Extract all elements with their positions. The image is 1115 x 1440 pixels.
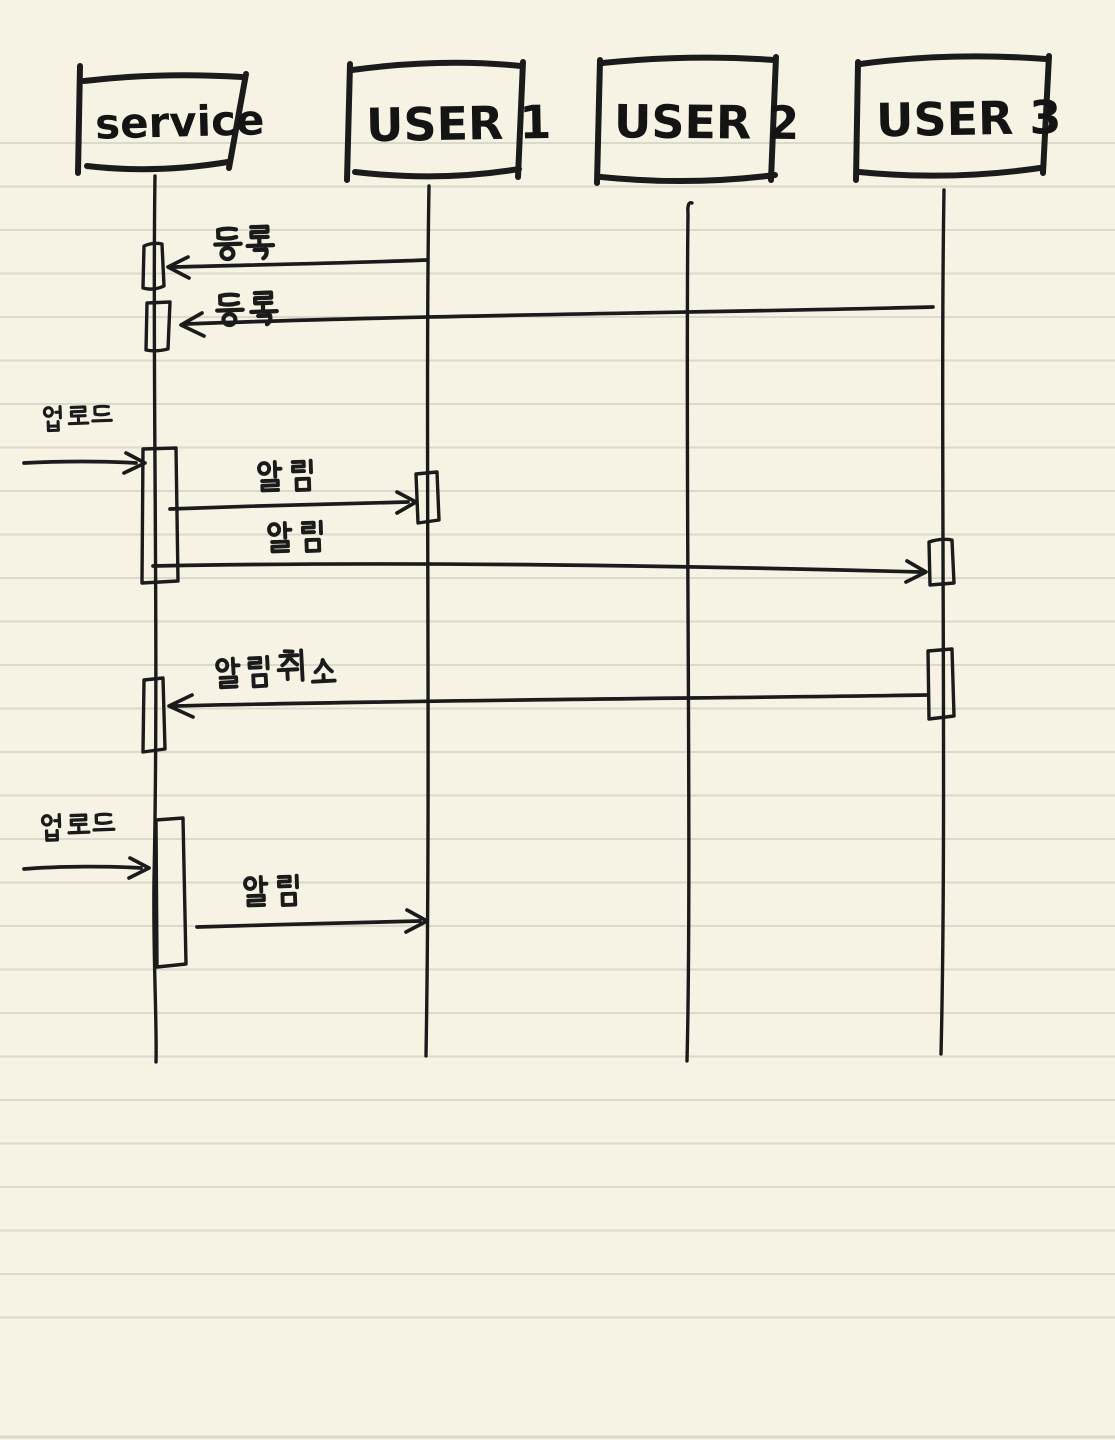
message-label-notify-2: [269, 522, 322, 553]
actor-label-service: service: [94, 95, 265, 148]
actor-box-service: service: [78, 66, 265, 173]
lifeline-user2: [687, 203, 692, 1061]
ruled-lines: [0, 143, 1115, 1318]
activation-service-2: [146, 302, 170, 351]
message-arrow-upload-1: [24, 453, 145, 473]
actor-label-user3: USER 3: [876, 90, 1062, 147]
message-arrow-notify-cancel: [169, 695, 927, 717]
message-label-register-1: [215, 226, 274, 259]
message-label-notify-cancel: [217, 649, 335, 689]
message-label-upload-2: [42, 813, 114, 841]
message-arrow-notify-1: [170, 492, 416, 513]
message-arrow-upload-2: [24, 858, 149, 878]
message-label-notify-3: [245, 876, 298, 907]
activation-service-5: [156, 818, 186, 967]
actor-box-user2: USER 2: [597, 57, 800, 183]
message-arrow-notify-3: [197, 910, 427, 932]
message-arrow-register-1: [168, 257, 427, 278]
message-label-notify-1: [259, 461, 312, 492]
notebook-page: service USER 1 USER 2 USER 3: [0, 0, 1115, 1440]
message-arrow-register-2: [181, 307, 933, 336]
sequence-diagram-sketch: service USER 1 USER 2 USER 3: [0, 0, 1115, 1440]
activation-service-3: [142, 448, 178, 583]
actor-box-user3: USER 3: [856, 56, 1062, 180]
actor-label-user2: USER 2: [614, 94, 800, 150]
actor-label-user1: USER 1: [366, 95, 552, 152]
message-label-upload-1: [44, 405, 111, 431]
actor-box-user1: USER 1: [347, 62, 552, 180]
